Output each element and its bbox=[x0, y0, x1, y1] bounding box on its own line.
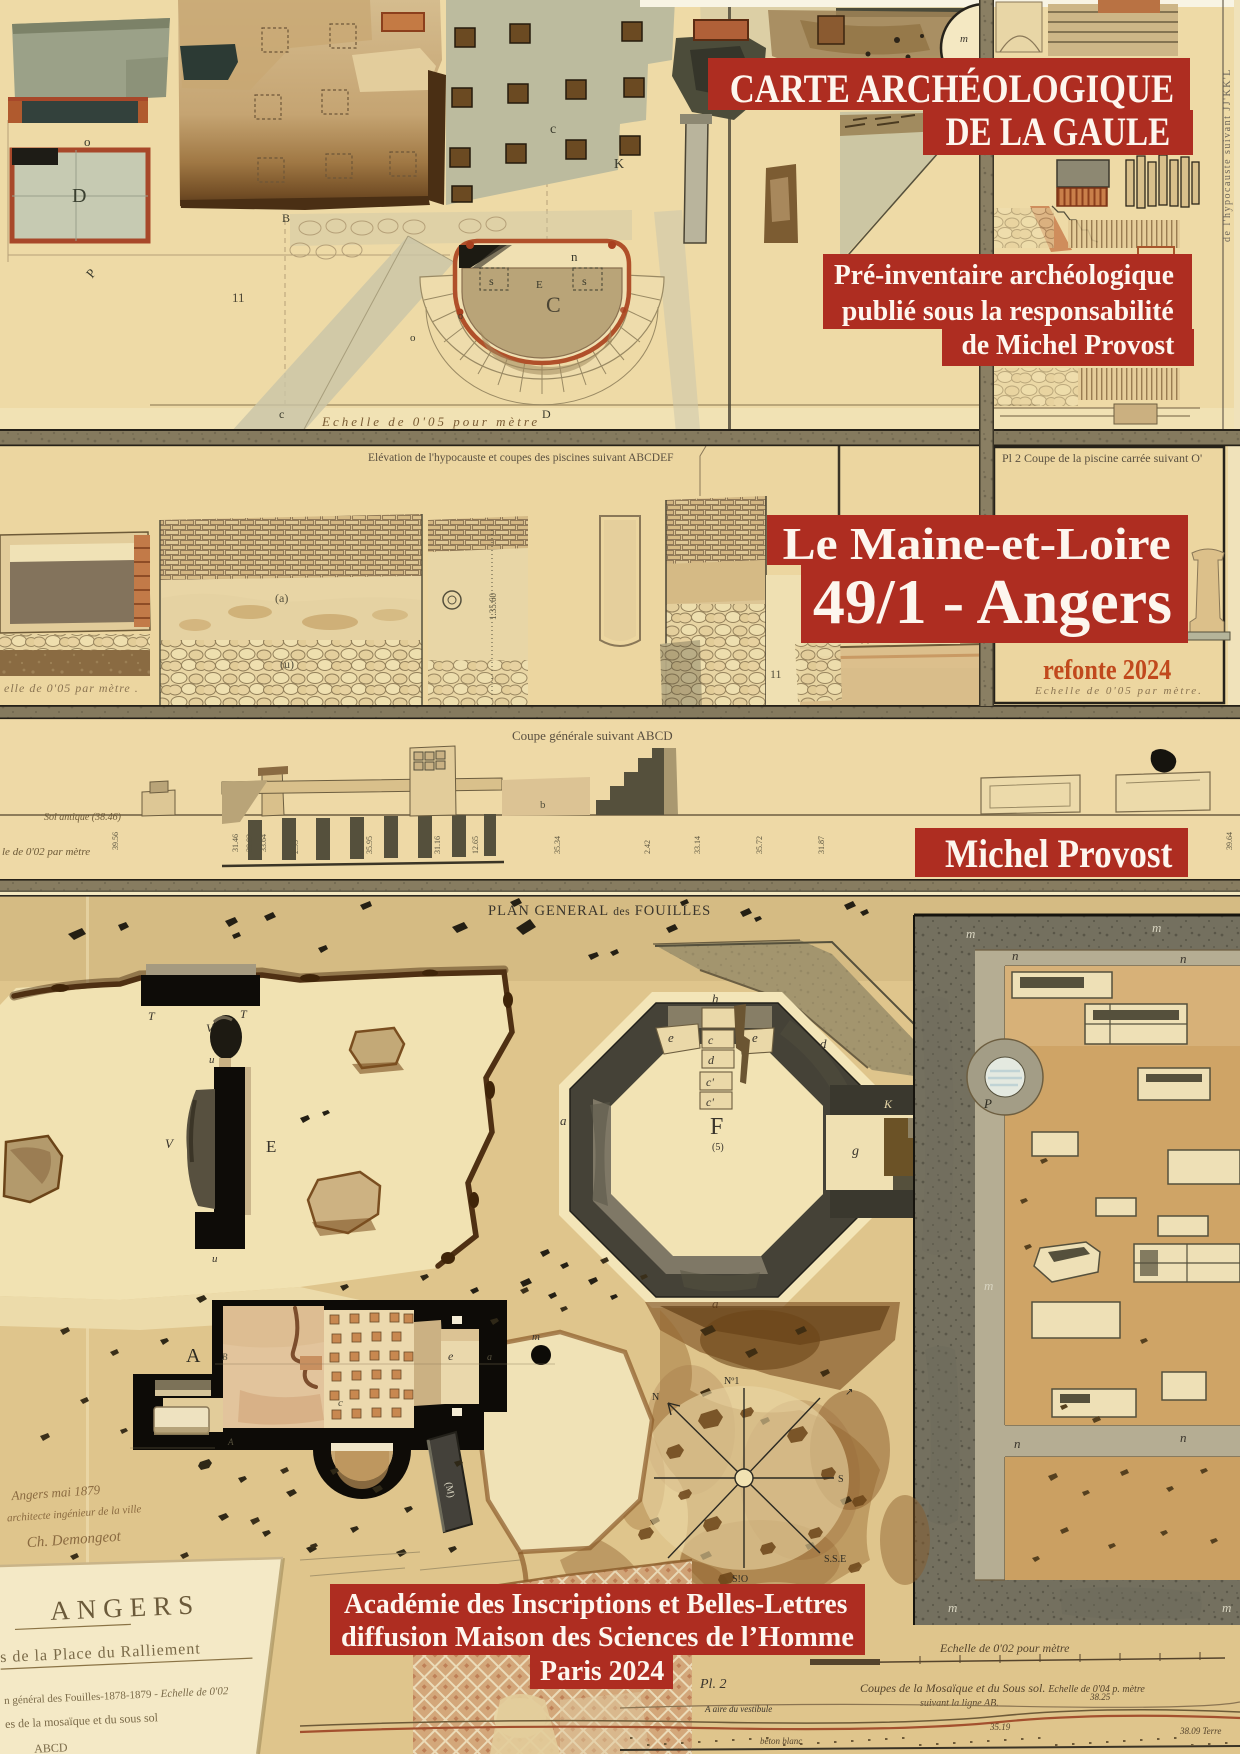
svg-text:38.09 Terre: 38.09 Terre bbox=[1179, 1726, 1221, 1736]
svg-text:B: B bbox=[282, 211, 290, 225]
svg-text:(u): (u) bbox=[280, 657, 294, 671]
svg-text:39.56: 39.56 bbox=[111, 832, 120, 850]
svg-text:s: s bbox=[582, 274, 587, 288]
svg-text:a: a bbox=[487, 1352, 492, 1363]
svg-text:E: E bbox=[266, 1137, 276, 1156]
svg-text:m: m bbox=[1152, 920, 1161, 935]
svg-text:b: b bbox=[540, 799, 546, 811]
svg-text:c': c' bbox=[706, 1095, 714, 1109]
svg-text:39.64: 39.64 bbox=[1225, 832, 1234, 850]
svg-text:1.35.60: 1.35.60 bbox=[488, 593, 498, 621]
svg-text:E: E bbox=[536, 279, 543, 291]
svg-text:n: n bbox=[1014, 1436, 1021, 1451]
svg-text:(a): (a) bbox=[275, 591, 288, 605]
svg-text:béton blanc: béton blanc bbox=[760, 1736, 802, 1746]
svg-text:le de 0'02 par mètre: le de 0'02 par mètre bbox=[2, 846, 90, 858]
svg-text:38.82: 38.82 bbox=[245, 834, 254, 852]
svg-text:S.S.E: S.S.E bbox=[824, 1554, 846, 1565]
svg-text:c: c bbox=[550, 122, 556, 137]
svg-text:m: m bbox=[966, 926, 975, 941]
svg-text:n: n bbox=[571, 249, 578, 264]
svg-text:Pl 2 Coupe de la piscine car: Pl 2 Coupe de la piscine carrée suivant … bbox=[1002, 451, 1202, 465]
svg-text:35.95: 35.95 bbox=[365, 836, 374, 854]
svg-text:2.93: 2.93 bbox=[291, 840, 300, 854]
svg-text:suivant la ligne AB.: suivant la ligne AB. bbox=[920, 1698, 999, 1709]
svg-text:m: m bbox=[984, 1278, 993, 1293]
svg-text:o: o bbox=[84, 134, 91, 149]
svg-text:Pl. 2: Pl. 2 bbox=[699, 1677, 726, 1692]
svg-text:d: d bbox=[708, 1053, 715, 1067]
svg-text:D: D bbox=[542, 407, 551, 421]
svg-text:ABCD: ABCD bbox=[34, 1740, 68, 1754]
svg-text:33.64: 33.64 bbox=[259, 834, 268, 852]
svg-text:c: c bbox=[279, 407, 284, 421]
svg-text:31.16: 31.16 bbox=[433, 836, 442, 854]
svg-text:Sol antique (38.46): Sol antique (38.46) bbox=[44, 812, 122, 823]
svg-text:31.46: 31.46 bbox=[231, 834, 240, 852]
svg-text:de l'hypocauste suivant JJ'KK': de l'hypocauste suivant JJ'KK'L bbox=[1222, 68, 1233, 242]
svg-text:D: D bbox=[72, 185, 86, 207]
svg-text:31.87: 31.87 bbox=[817, 836, 826, 854]
svg-text:N: N bbox=[652, 1392, 659, 1403]
svg-text:B: B bbox=[222, 1352, 228, 1362]
svg-text:c': c' bbox=[706, 1075, 714, 1089]
svg-text:Elévation de l'hypocauste et c: Elévation de l'hypocauste et coupes des … bbox=[368, 452, 674, 464]
svg-text:A: A bbox=[186, 1345, 201, 1367]
svg-text:Echelle de 0'02 pour mètre: Echelle de 0'02 pour mètre bbox=[939, 1641, 1070, 1655]
svg-text:e: e bbox=[448, 1349, 454, 1363]
svg-text:n: n bbox=[1180, 1430, 1187, 1445]
svg-text:n: n bbox=[1180, 951, 1187, 966]
svg-text:m: m bbox=[532, 1331, 540, 1343]
svg-text:12.65: 12.65 bbox=[471, 836, 480, 854]
svg-text:F: F bbox=[710, 1114, 723, 1140]
svg-text:38.25: 38.25 bbox=[1089, 1692, 1111, 1702]
svg-text:m: m bbox=[1222, 1600, 1231, 1615]
svg-text:35.72: 35.72 bbox=[755, 836, 764, 854]
svg-text:33.14: 33.14 bbox=[693, 836, 702, 854]
svg-text:Nº1: Nº1 bbox=[724, 1376, 739, 1387]
svg-text:s: s bbox=[489, 274, 494, 288]
svg-text:a: a bbox=[560, 1113, 567, 1128]
svg-text:o: o bbox=[458, 311, 463, 322]
svg-text:c: c bbox=[708, 1033, 714, 1047]
svg-text:11: 11 bbox=[770, 667, 782, 681]
svg-text:d: d bbox=[820, 1036, 827, 1051]
svg-text:K: K bbox=[614, 157, 624, 172]
svg-text:2.42: 2.42 bbox=[643, 840, 652, 854]
svg-text:(5): (5) bbox=[712, 1142, 724, 1153]
svg-text:Echelle de 0'05 par mètre.: Echelle de 0'05 par mètre. bbox=[1034, 685, 1203, 697]
svg-text:A: A bbox=[227, 1437, 234, 1447]
svg-text:o: o bbox=[410, 332, 416, 344]
svg-text:PLAN GENERAL des FOUILLES: PLAN GENERAL des FOUILLES bbox=[488, 903, 711, 919]
svg-text:C: C bbox=[546, 292, 561, 317]
svg-text:K: K bbox=[883, 1097, 893, 1111]
svg-text:m: m bbox=[960, 33, 968, 45]
svg-text:Coupe générale suivant ABCD: Coupe générale suivant ABCD bbox=[512, 728, 673, 743]
svg-text:Echelle de 0'05 pour mètre: Echelle de 0'05 pour mètre bbox=[321, 414, 540, 429]
svg-text:S: S bbox=[838, 1474, 844, 1485]
svg-text:n: n bbox=[1012, 948, 1019, 963]
svg-text:u: u bbox=[209, 1054, 215, 1066]
svg-text:e: e bbox=[752, 1030, 758, 1045]
svg-text:u: u bbox=[212, 1253, 218, 1265]
svg-text:c: c bbox=[338, 1397, 343, 1409]
svg-text:P: P bbox=[983, 1096, 992, 1111]
svg-text:35.34: 35.34 bbox=[553, 836, 562, 854]
svg-text:m: m bbox=[948, 1600, 957, 1615]
svg-text:↗: ↗ bbox=[845, 1387, 853, 1398]
svg-text:h: h bbox=[712, 991, 719, 1006]
svg-text:35.19: 35.19 bbox=[989, 1722, 1011, 1732]
svg-text:g: g bbox=[852, 1144, 859, 1159]
svg-text:elle de 0'05 par mètre .: elle de 0'05 par mètre . bbox=[4, 681, 139, 695]
svg-text:e: e bbox=[668, 1030, 674, 1045]
svg-text:11: 11 bbox=[232, 290, 245, 305]
